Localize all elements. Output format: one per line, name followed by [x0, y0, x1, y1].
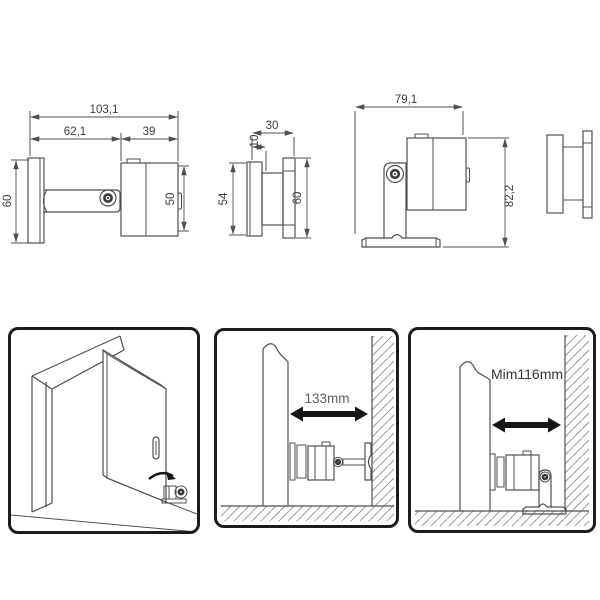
magnet-body — [506, 455, 539, 490]
base-edges — [366, 238, 436, 247]
dim-label-right-height: 60 — [292, 192, 304, 205]
front-view-geometry — [247, 158, 295, 238]
dim-label-total-length: 103,1 — [90, 104, 119, 116]
panel-floor-clearance: Mim116mm — [408, 327, 596, 533]
body-end — [547, 135, 563, 213]
door-leaf — [103, 350, 166, 502]
wall-plate — [365, 443, 371, 480]
screw-icon — [540, 472, 550, 482]
magnet-body — [407, 138, 466, 210]
side-view-geometry — [28, 158, 182, 243]
body-top-button — [127, 159, 140, 163]
dim-label-step-width: 10 — [249, 135, 261, 148]
swing-arrow-head — [166, 471, 176, 480]
wall-plate — [28, 158, 44, 243]
rod — [343, 459, 365, 465]
floor-lines — [11, 502, 197, 531]
body-top-button — [322, 442, 330, 446]
stopper-floor-view — [490, 451, 566, 514]
wall-hatch — [372, 336, 394, 506]
side-view-drawing: 103,1 62,1 39 60 50 — [2, 104, 189, 243]
stopper-knob-core — [179, 490, 183, 494]
body-top-button — [523, 451, 531, 455]
extension-lines — [11, 111, 189, 243]
extension-lines — [229, 137, 311, 238]
door-section — [263, 344, 288, 506]
clearance-arrow — [290, 407, 368, 422]
panel-door-open — [8, 327, 200, 534]
collar — [497, 457, 504, 487]
door-plate — [290, 443, 295, 480]
stopper-knob — [175, 486, 187, 498]
plate-end — [583, 131, 592, 218]
floor-view-drawing: 79,1 82,2 — [355, 94, 516, 247]
door-section — [460, 362, 490, 511]
floor-clearance-illustration: Mim116mm — [411, 330, 593, 530]
door-outline — [103, 350, 166, 502]
screw-core — [336, 460, 340, 464]
technical-views: 103,1 62,1 39 60 50 — [0, 0, 600, 322]
floor-view-geometry — [362, 134, 470, 247]
frame-left-jamb — [32, 376, 52, 512]
dim-label-body-section: 39 — [143, 126, 156, 138]
collar — [297, 445, 306, 478]
dim-label-left-height: 54 — [218, 192, 230, 205]
clearance-label: Mim116mm — [491, 366, 563, 382]
door-open-illustration — [11, 330, 197, 531]
extension-lines — [355, 111, 509, 247]
body-top-button — [415, 134, 428, 138]
stopper-side-view — [290, 442, 371, 480]
plate-profile — [247, 162, 262, 236]
floor-hatch — [221, 506, 394, 521]
screw-core — [543, 475, 547, 479]
end-view-drawing — [547, 131, 592, 218]
floor-hatch — [415, 511, 589, 526]
magnet-body — [308, 446, 334, 480]
clearance-arrow — [492, 418, 561, 433]
front-view-drawing: 30 10 54 60 — [218, 120, 311, 238]
dim-label-width: 79,1 — [395, 94, 417, 106]
panel-wall-clearance: 133mm — [214, 328, 399, 528]
wall-hatch — [565, 335, 589, 511]
technical-drawing-page: 103,1 62,1 39 60 50 — [0, 0, 600, 600]
dim-label-arm-section: 62,1 — [64, 126, 86, 138]
clearance-label: 133mm — [304, 391, 349, 406]
door-plate — [490, 454, 495, 490]
dim-label-height: 82,2 — [504, 185, 516, 207]
dim-label-body-height: 50 — [165, 193, 177, 206]
screw-center — [394, 173, 396, 175]
wall-clearance-illustration: 133mm — [217, 331, 396, 525]
dim-label-plate-height: 60 — [2, 195, 14, 208]
hub-profile — [262, 173, 283, 225]
base-plate — [362, 235, 440, 248]
dim-label-top-width: 30 — [266, 120, 279, 132]
screw-icon — [333, 457, 342, 466]
screw-center — [107, 197, 109, 199]
